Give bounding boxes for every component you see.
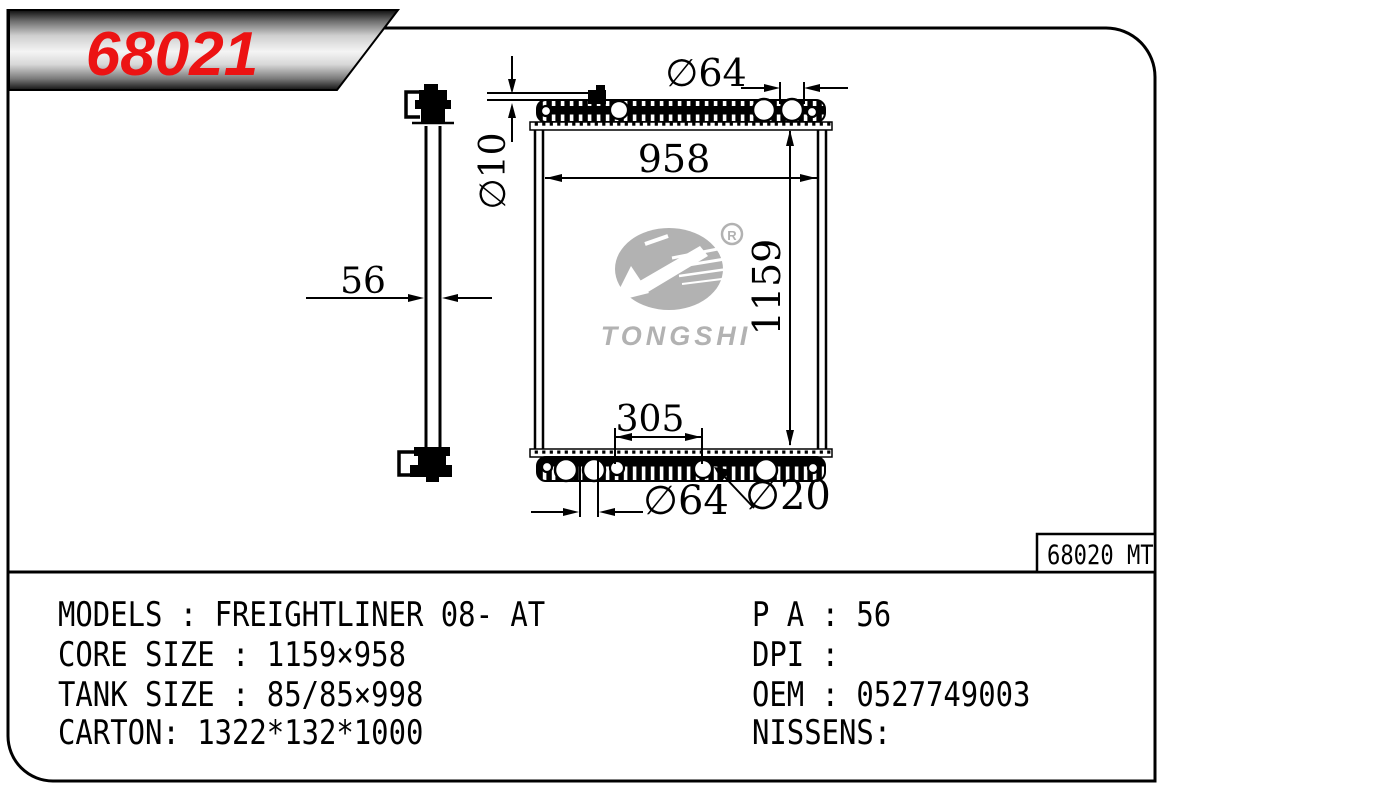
dim-top-hole: ∅64 [665, 51, 848, 104]
bottom-outlet-hole [555, 459, 577, 481]
dim-depth: 56 [306, 261, 492, 302]
dim-label-drain-hole: ∅20 [745, 473, 831, 519]
dim-label-core-width: 958 [638, 137, 711, 181]
part-number-banner: 68021 [9, 10, 398, 90]
dim-label-core-height: 1159 [745, 239, 789, 336]
registered-trademark-letter: R [727, 228, 737, 243]
spec-carton: CARTON: 1322*132*1000 [58, 716, 423, 750]
dim-pipe-diameter: ∅10 [473, 56, 516, 210]
bottom-rail [530, 449, 832, 457]
ref-label: 68020 MT [1047, 542, 1154, 569]
side-view [399, 84, 454, 482]
dim-label-pipe: ∅10 [473, 132, 514, 209]
dim-core-width: 958 [545, 137, 817, 182]
brand-name: TONGSHI [601, 321, 752, 351]
spec-core-size: CORE SIZE : 1159×958 [58, 638, 406, 672]
top-inlet-hole [753, 99, 775, 121]
spec-pa: P A : 56 [752, 598, 891, 632]
part-number: 68021 [86, 20, 258, 89]
spec-nissens: NISSENS: [752, 716, 891, 750]
top-rail [530, 122, 832, 130]
drawing-sheet: 68021 [0, 0, 1399, 801]
dim-label-bottom-hole: ∅64 [643, 478, 729, 524]
spec-models: MODELS : FREIGHTLINER 08- AT [58, 598, 545, 632]
spec-dpi: DPI : [752, 638, 839, 672]
dim-label-bracket-span: 305 [616, 399, 685, 440]
spec-oem: OEM : 0527749003 [752, 678, 1030, 712]
dim-label-top-hole: ∅64 [665, 51, 746, 95]
dim-label-depth: 56 [340, 261, 386, 302]
spec-tank-size: TANK SIZE : 85/85×998 [58, 678, 423, 712]
brand-logo: R TONGSHI [601, 224, 752, 351]
